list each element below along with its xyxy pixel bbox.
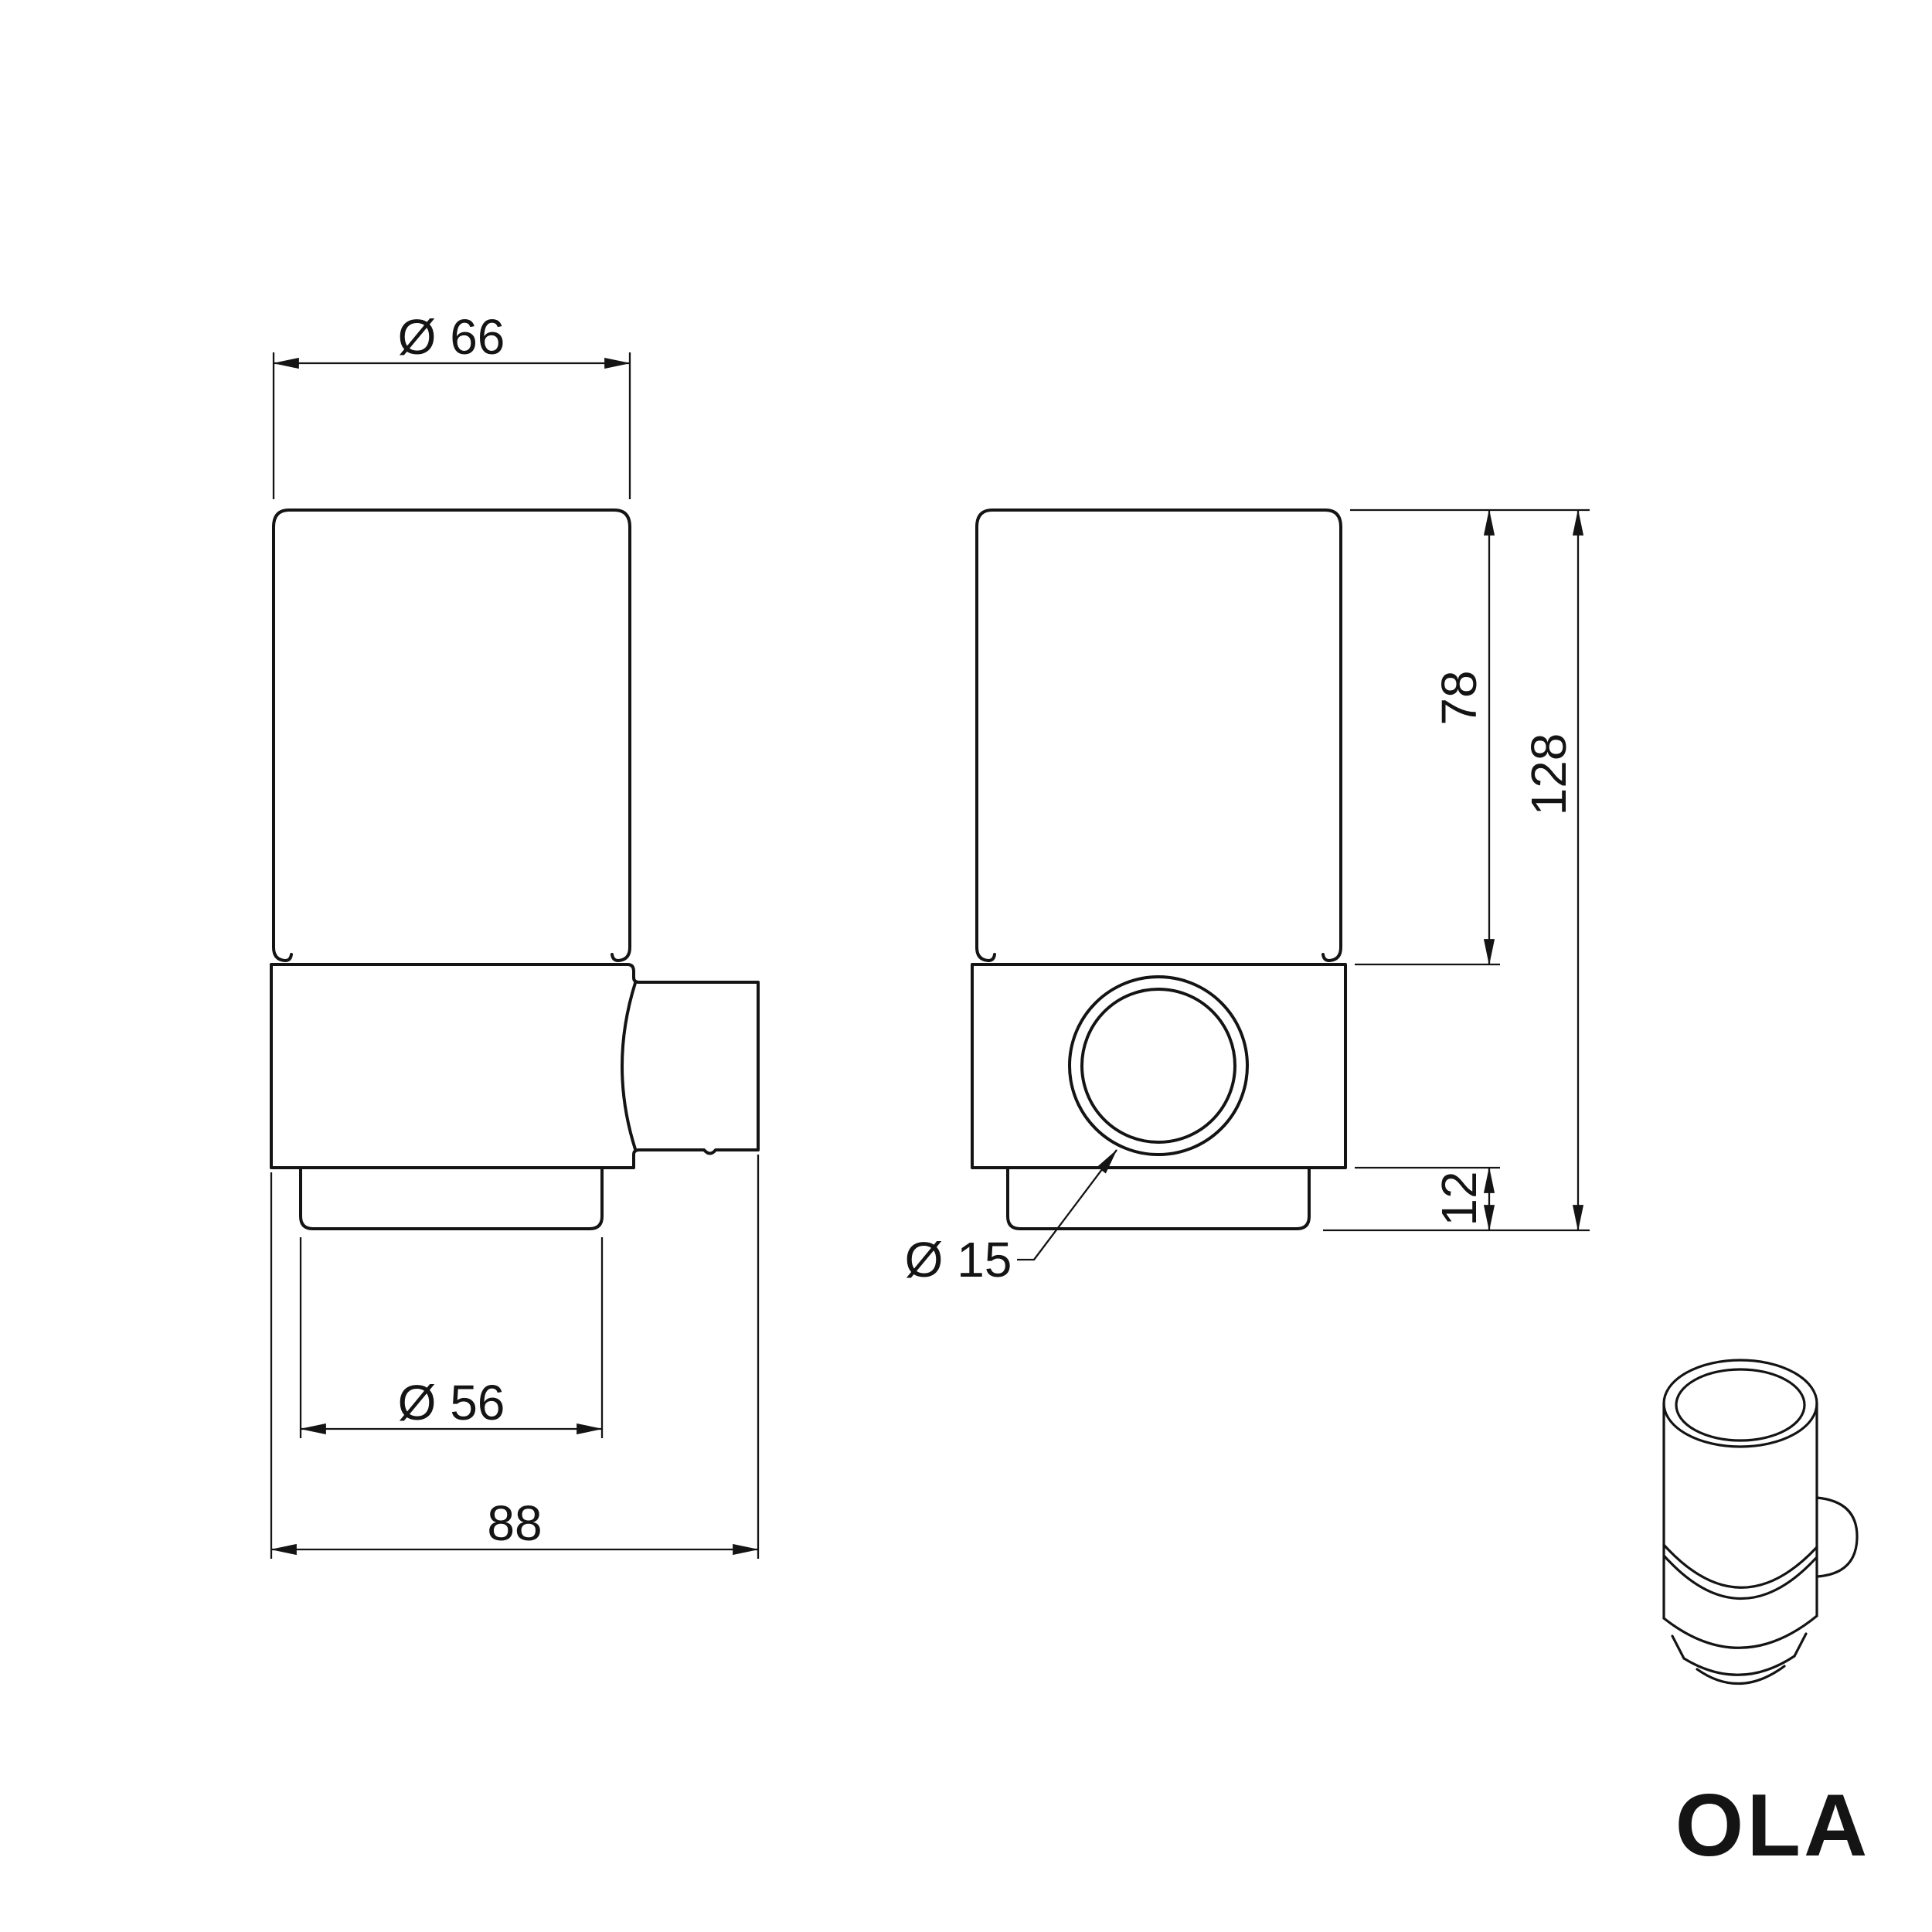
front-view (972, 510, 1345, 1229)
d128-label: 128 (1521, 733, 1577, 816)
thumb-rim-outer-ellipse (1664, 1360, 1817, 1447)
side-bracket-intersection-arc (622, 983, 635, 1149)
d78-label: 78 (1431, 670, 1487, 725)
side-holder-ring-and-bracket-path (271, 964, 758, 1168)
technical-drawing-canvas: Ø 66 Ø 56 88 78 12 (0, 0, 1932, 1932)
d66-label: Ø 66 (398, 309, 505, 365)
d56-label: Ø 56 (398, 1375, 505, 1430)
thumb-wall-knob-path (1817, 1498, 1857, 1577)
side-cup-outline-path (274, 510, 630, 961)
front-mount-circle-outer (1070, 977, 1247, 1155)
thumb-band-top-arc-inner (1665, 1556, 1816, 1599)
d88-label: 88 (487, 1495, 542, 1551)
front-holder-block-path (972, 964, 1345, 1168)
side-view (271, 510, 758, 1229)
side-view-dimensions: Ø 66 Ø 56 88 (271, 309, 758, 1559)
drawing-page: Ø 66 Ø 56 88 78 12 (0, 0, 1932, 1932)
side-cup-base-path (301, 1168, 602, 1229)
brand-logo-text: OLA (1675, 1777, 1871, 1875)
perspective-thumbnail (1664, 1360, 1857, 1684)
thumb-band-bottom-arc (1664, 1616, 1817, 1648)
front-mount-circle-inner (1082, 989, 1235, 1142)
thumb-rim-inner-ellipse (1676, 1369, 1804, 1440)
d15-label: Ø 15 (905, 1232, 1012, 1287)
thumb-band-top-arc-outer (1664, 1545, 1817, 1587)
thumb-base-taper-right (1794, 1634, 1806, 1656)
front-cup-base-path (1008, 1168, 1309, 1229)
thumb-base-taper-left (1672, 1636, 1684, 1658)
front-cup-outline-path (977, 510, 1341, 961)
d12-label: 12 (1431, 1171, 1487, 1226)
